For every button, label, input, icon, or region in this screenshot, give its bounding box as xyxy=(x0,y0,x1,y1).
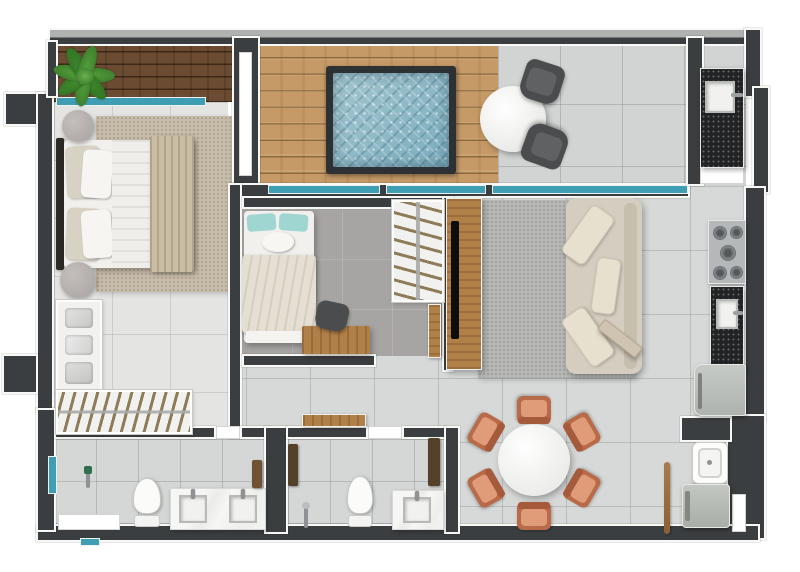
kitchen-faucet xyxy=(731,93,743,97)
nightstand-round xyxy=(60,262,96,298)
door-gap-bathroom2 xyxy=(368,426,402,439)
dining-table xyxy=(498,424,570,496)
folded-clothes xyxy=(65,335,93,355)
wall-right-jut xyxy=(752,86,770,194)
shower-head xyxy=(302,502,310,509)
wardrobe-shelves xyxy=(56,300,102,392)
shower-column-bathroom1 xyxy=(84,466,92,494)
window-deck-b xyxy=(386,185,486,194)
wall-left-main xyxy=(36,92,54,414)
wall-bathroom2-east xyxy=(444,426,460,534)
hanging-rail xyxy=(56,390,192,434)
dining-chair xyxy=(517,396,551,424)
tv xyxy=(451,221,459,339)
round-pillow xyxy=(262,232,294,252)
bedroom2-door-leaf xyxy=(428,304,441,358)
kitchen-cabinet-door xyxy=(700,166,744,184)
teal-pillow xyxy=(278,213,308,232)
dining-chair xyxy=(517,502,551,530)
gas-cooktop xyxy=(708,220,746,284)
vanity-sink xyxy=(179,495,207,523)
washing-machine xyxy=(682,484,730,528)
toilet-bathroom1 xyxy=(132,478,162,528)
tv-panel xyxy=(446,198,482,370)
wall-master-east xyxy=(228,183,242,439)
laundry-tub xyxy=(692,442,728,484)
window-bathroom1-south xyxy=(80,538,100,546)
sofa-cushion xyxy=(590,257,622,316)
wall-bathroom2-north-b xyxy=(402,426,446,439)
wall-left-jut-bottom xyxy=(2,354,38,394)
pool-water xyxy=(333,73,449,167)
single-bed xyxy=(244,211,314,343)
kitchen-counter-east xyxy=(710,286,744,370)
teal-pillow xyxy=(246,213,276,232)
wall-right-mid xyxy=(744,186,766,422)
broom xyxy=(664,462,670,534)
kitchen-counter-north xyxy=(700,68,744,168)
shower-head xyxy=(84,466,92,474)
wall-bathroom2-north-a xyxy=(286,426,368,439)
single-vanity xyxy=(392,490,444,530)
bed-blanket xyxy=(242,255,316,333)
wall-top xyxy=(48,28,762,46)
door-gap-bathroom1 xyxy=(216,426,240,439)
vanity-faucet xyxy=(191,489,195,499)
window-deck-a xyxy=(268,185,380,194)
wall-laundry-cap xyxy=(680,416,732,442)
towel-rack xyxy=(428,438,440,486)
towel-rack xyxy=(252,460,262,488)
toilet-bathroom2 xyxy=(346,476,374,528)
door-balcony-deck xyxy=(239,52,252,176)
towel-rack xyxy=(288,444,298,486)
fern-plant xyxy=(44,32,128,120)
floor-plan-render xyxy=(0,0,800,572)
bedroom2-closet-hangers xyxy=(392,200,444,302)
bed-pillow xyxy=(80,149,113,199)
folded-clothes xyxy=(65,362,93,384)
vanity-faucet xyxy=(241,489,245,499)
console-shelf xyxy=(302,414,366,427)
shower-tray-bathroom1 xyxy=(58,514,120,530)
kitchen-sink xyxy=(705,81,735,113)
vanity-sink xyxy=(229,495,257,523)
kitchen-faucet-2 xyxy=(733,311,743,315)
nightstand-round xyxy=(62,110,94,142)
vanity-faucet xyxy=(415,491,419,501)
bed-headboard xyxy=(56,138,64,270)
tub-drain xyxy=(707,460,712,465)
plunge-pool xyxy=(326,66,456,174)
glass-screen-bathroom1 xyxy=(48,456,57,494)
wall-bath-divider xyxy=(264,426,288,534)
window-terrace-living xyxy=(492,185,688,194)
washer-door-edge xyxy=(685,491,690,521)
shower-column-bathroom2 xyxy=(302,502,310,530)
door-laundry-service xyxy=(732,494,746,532)
bed-sheet xyxy=(112,140,152,268)
plant-center xyxy=(76,68,94,84)
refrigerator xyxy=(694,364,746,416)
bed-pillow xyxy=(80,209,113,259)
double-vanity xyxy=(170,488,266,530)
bed-blanket xyxy=(150,136,194,272)
folded-clothes xyxy=(65,308,93,328)
wall-bedroom2-south xyxy=(242,354,376,367)
master-double-bed xyxy=(56,138,194,270)
refrigerator-handle xyxy=(698,373,702,409)
